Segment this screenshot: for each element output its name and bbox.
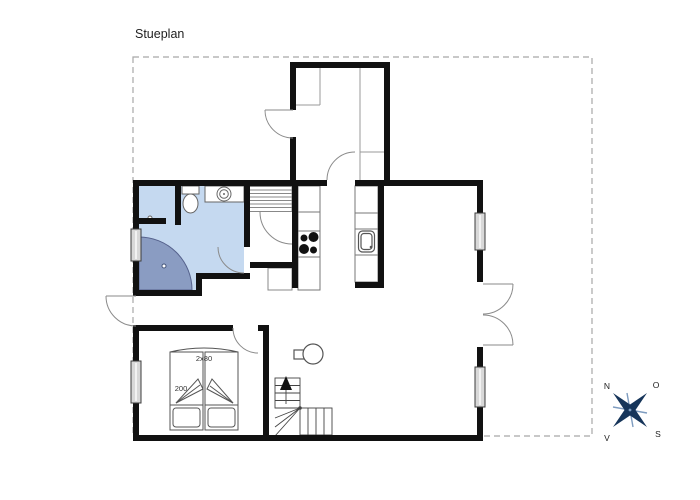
wall [355, 180, 483, 186]
toilet-bowl [183, 194, 198, 213]
wall-kitchen-right [378, 186, 384, 282]
cabinet-end [268, 268, 292, 290]
wall [250, 262, 298, 268]
wall [290, 68, 296, 110]
burner [309, 232, 319, 242]
door-arc-french-bottom [483, 315, 513, 345]
wall [477, 250, 483, 282]
compass-label-west: V [604, 433, 610, 443]
door-arc-entry-room-south [327, 152, 355, 180]
wall [202, 273, 250, 279]
wardrobe-hatch [248, 187, 292, 212]
wall [355, 282, 384, 288]
wall [290, 137, 296, 180]
wall [133, 290, 202, 296]
shower-drain [162, 264, 166, 268]
burner [310, 247, 317, 254]
compass-label-north: N [604, 381, 610, 391]
wall [384, 68, 390, 186]
bed-length-label: 200 [175, 384, 188, 393]
entrance-room-closets [296, 68, 384, 180]
compass-label-east: O [653, 380, 660, 390]
door-arc-hallway [260, 212, 292, 244]
stove-body [303, 344, 323, 364]
floorplan-page: 2x80 200 [0, 0, 700, 500]
headboard-arc [170, 348, 238, 352]
wall-bedroom-right [263, 331, 269, 436]
wall [477, 347, 483, 367]
wall [477, 186, 483, 213]
kitchen-sink [359, 231, 375, 252]
wall-bedroom-top [133, 325, 233, 331]
wall [477, 407, 483, 441]
stair-pivot [298, 406, 302, 410]
floorplan-drawing: 2x80 200 [0, 0, 700, 500]
washbasin-drain [223, 193, 225, 195]
compass-hub-dot [629, 409, 632, 412]
door-arc-entry-room-west [265, 110, 293, 138]
toilet-tank [182, 186, 199, 194]
compass-rose: N O S V [604, 380, 661, 443]
wall [290, 62, 390, 68]
wood-stove [294, 344, 323, 364]
page-title: Stueplan [135, 27, 184, 41]
wall [133, 180, 327, 186]
wall [133, 435, 483, 441]
wall-bathroom-partition [175, 186, 181, 225]
burner [301, 235, 308, 242]
bed-left-pillow [173, 408, 200, 427]
wall [258, 325, 269, 331]
washbasin-unit [205, 186, 244, 202]
bed-width-label: 2x80 [196, 354, 212, 363]
sink-drain [370, 246, 373, 249]
door-arc-french-top [483, 284, 513, 314]
wall [244, 186, 250, 247]
wall-bathroom-partition [139, 218, 166, 224]
burner [299, 244, 309, 254]
wall-kitchen-left [292, 186, 298, 288]
compass-label-south: S [655, 429, 661, 439]
bed-right-pillow [208, 408, 235, 427]
toilet [182, 186, 199, 213]
door-arc-entrance [106, 296, 136, 326]
door-arc-bedroom [233, 328, 258, 353]
